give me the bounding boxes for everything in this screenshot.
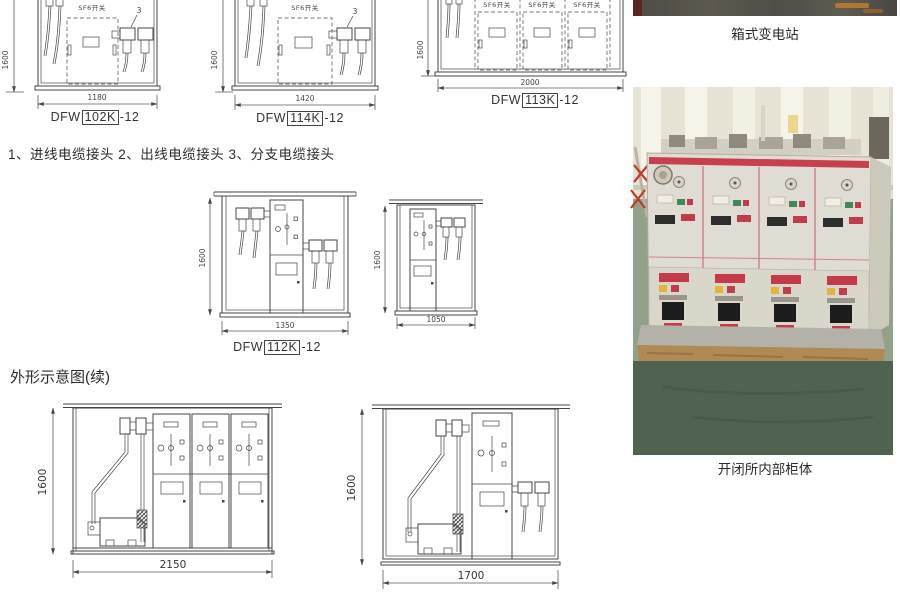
model-code: 113K [522, 93, 558, 108]
width-dimension: 1420 [235, 94, 375, 110]
sf6-switch-label: SF6开关 [78, 3, 106, 12]
height-dimension: 1600 [198, 198, 210, 315]
width-dimension: 2000 [438, 78, 623, 92]
height-dimension: 1600 [416, 0, 436, 76]
watermark-text [863, 9, 883, 13]
door-panel [278, 18, 332, 84]
dim-height-label: 1600 [37, 469, 49, 496]
model-suffix: -12 [559, 93, 579, 107]
diagram-cabinet-1050: 1600 1050 [372, 192, 492, 340]
left-cable-terminals [236, 208, 270, 258]
section-heading: 外形示意图(续) [10, 366, 110, 387]
width-dimension: 1700 [383, 570, 558, 589]
door-panels [475, 0, 610, 70]
model-prefix: DFW [491, 93, 521, 107]
switch-module [270, 200, 303, 313]
right-cable-terminals [303, 240, 337, 289]
switch-panel [472, 413, 512, 559]
sf6-switch-label: SF6开关 [291, 3, 319, 12]
model-label-dfw114k: DFW114K-12 [255, 111, 345, 126]
height-dimension: 1600 [346, 409, 362, 565]
switch-module [410, 209, 436, 311]
dim-height-label: 1600 [373, 250, 382, 269]
side-cabinet [869, 157, 891, 337]
model-suffix: -12 [120, 110, 140, 124]
switch-panels [153, 414, 268, 548]
photo-box-substation [633, 0, 897, 16]
sf6-switch-label: SF6开关 [573, 0, 601, 9]
model-suffix: -12 [324, 111, 344, 125]
floor-front [633, 361, 893, 455]
dim-height-label: 1600 [346, 475, 358, 502]
photo-switchgear-cabinets [633, 87, 893, 455]
cabinet-outline [220, 196, 350, 317]
height-dimension: 1600 [373, 206, 385, 313]
cable-terminal-assembly [408, 420, 469, 552]
model-suffix: -12 [301, 340, 321, 354]
model-prefix: DFW [233, 340, 263, 354]
roof [214, 192, 356, 196]
diagram-cabinet-1700: 1600 1700 [340, 396, 582, 601]
roof [63, 404, 282, 408]
cabinet-outline [381, 409, 560, 565]
sf6-switch-label: SF6开关 [528, 0, 556, 9]
right-cable-terminals [512, 482, 549, 532]
incoming-cables [245, 0, 267, 66]
width-dimension: 1350 [222, 321, 348, 335]
callout-3: 3 [131, 6, 142, 27]
watermark-text [835, 3, 869, 8]
dim-width-label: 2150 [160, 559, 187, 571]
model-prefix: DFW [51, 110, 81, 124]
sf6-switch-label: SF6开关 [483, 0, 511, 9]
incoming-cables [44, 0, 63, 64]
dim-width-label: 1350 [275, 321, 294, 330]
cable-legend-note: 1、进线电缆接头 2、出线电缆接头 3、分支电缆接头 [8, 143, 335, 163]
base-and-pallet [637, 325, 885, 365]
caption-switchgear: 开闭所内部柜体 [633, 458, 897, 478]
model-prefix: DFW [256, 111, 286, 125]
dim-width-label: 1420 [295, 94, 314, 103]
dim-height-label: 1600 [198, 248, 207, 267]
door-panel [67, 18, 118, 84]
height-dimension: 1600 [1, 0, 24, 92]
cabinet-outline [435, 0, 626, 76]
dim-width-label: 1050 [426, 315, 445, 324]
caption-box-substation: 箱式变电站 [633, 23, 897, 43]
callout-3-label: 3 [353, 7, 358, 16]
callout-3: 3 [347, 7, 358, 27]
roof [372, 405, 570, 409]
width-dimension: 1180 [38, 93, 157, 109]
dim-width-label: 1700 [458, 570, 485, 582]
dim-width-label: 1180 [87, 93, 106, 102]
roof [389, 200, 483, 204]
width-dimension: 1050 [397, 315, 475, 329]
width-dimension: 2150 [73, 559, 272, 578]
cable-junction-box [88, 518, 145, 546]
model-code: 112K [264, 340, 300, 355]
model-label-dfw112k: DFW112K-12 [232, 340, 322, 355]
height-dimension: 1600 [37, 408, 53, 554]
catalog-page: 1600 SF6开关 [0, 0, 900, 613]
dim-height-label: 1600 [210, 50, 219, 69]
callout-3-label: 3 [137, 6, 142, 15]
height-dimension: 1600 [210, 0, 233, 92]
incoming-cables [446, 0, 462, 38]
model-code: 114K [287, 111, 323, 126]
diagram-dfw112k: 1600 1350 [190, 183, 365, 358]
diagram-cabinet-2150: 1600 2150 [30, 396, 292, 588]
dim-height-label: 1600 [416, 40, 425, 59]
model-code: 102K [82, 110, 119, 125]
branch-cable-terminals [329, 28, 370, 75]
model-label-dfw113k: DFW113K-12 [490, 93, 580, 108]
photo-edge-strip [633, 0, 642, 16]
right-cable-terminals [436, 218, 465, 260]
dim-height-label: 1600 [1, 50, 10, 69]
dim-width-label: 2000 [520, 78, 539, 87]
model-label-dfw102k: DFW102K-12 [50, 110, 140, 125]
